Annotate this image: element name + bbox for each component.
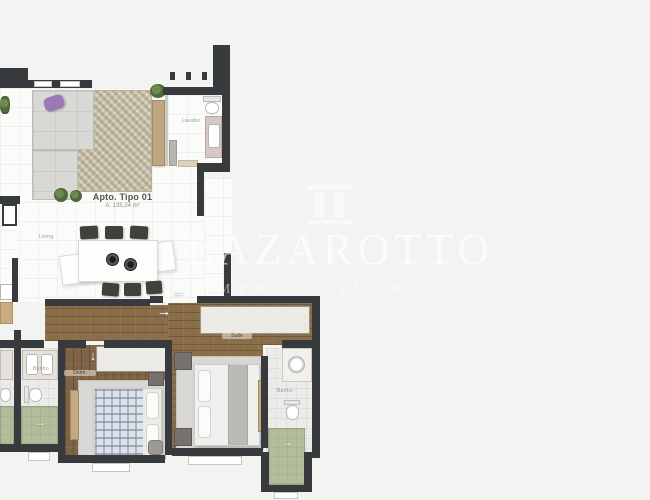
hallway-arrow-icon: → (146, 303, 182, 320)
wall-segment (261, 485, 312, 492)
bedroom-window (92, 463, 130, 472)
bathroom-window (28, 452, 50, 461)
neighbor-shower-floor (0, 406, 14, 446)
column-arch-icon (304, 182, 356, 228)
toilet-icon (29, 388, 42, 402)
lavabo-sink (208, 124, 220, 148)
vent-tick (186, 72, 191, 80)
wall-segment (312, 296, 320, 458)
bed-pillow (198, 406, 211, 438)
toilet-icon (286, 405, 299, 420)
suite-shower-arrow-icon: → (274, 435, 300, 449)
wall-segment (12, 258, 18, 302)
nightstand (174, 428, 192, 446)
room-label-bath-suite: Banho (270, 388, 300, 394)
room-label-living: Living (28, 234, 64, 240)
room-label-bath: Banho (28, 366, 54, 372)
wall-segment (165, 340, 172, 455)
bed-blanket (228, 365, 248, 445)
floor-plan-image: Apto. Tipo 01 A: 135,24 m² Living Lavabo… (0, 0, 650, 500)
wall-segment (197, 163, 230, 172)
wall-segment (282, 340, 312, 348)
entry-arrow-icon: ← (162, 284, 196, 301)
armchair (148, 440, 163, 455)
wall-segment (104, 340, 165, 348)
bathroom-vanity (0, 350, 13, 380)
cooktop-burner-icon (106, 253, 119, 266)
watermark-brand: LAZAROTTO (186, 224, 494, 275)
vent-tick (170, 72, 175, 80)
bed-bench (70, 390, 79, 440)
lavabo-cabinet (169, 140, 177, 166)
toilet-icon (0, 388, 11, 402)
wall-segment (20, 444, 58, 452)
wall-light (165, 95, 168, 166)
bedroom-wardrobe (96, 346, 168, 372)
window (34, 81, 52, 87)
room-label-bedroom: Dorm. (64, 370, 96, 376)
sideboard (152, 100, 165, 166)
laundry-counter (0, 302, 13, 324)
dining-chair (105, 226, 123, 239)
side-door (2, 204, 17, 226)
wall-segment (0, 196, 20, 204)
apartment-label: Apto. Tipo 01 A: 135,24 m² (70, 192, 175, 209)
bed-plaid-blanket (95, 389, 143, 455)
wall-segment (14, 330, 21, 452)
suite-sink (288, 356, 305, 373)
cooktop-burner-icon (124, 258, 137, 271)
window (60, 81, 80, 87)
apartment-area: A: 135,24 m² (70, 203, 175, 209)
lavabo-mat (178, 160, 198, 167)
shower-arrow-icon: → (26, 415, 54, 429)
bedroom-door-arrow-icon: ↓ (84, 348, 102, 363)
suite-window (188, 456, 242, 465)
dining-chair (80, 226, 99, 240)
wall-segment (0, 340, 44, 348)
vent-tick (202, 72, 207, 80)
bed-pillow (146, 392, 159, 419)
nightstand (148, 372, 164, 386)
balcony-plant-icon (0, 96, 10, 114)
wall-segment (58, 455, 165, 463)
wall-segment (197, 172, 204, 216)
toilet-icon (205, 102, 219, 114)
wall-segment (172, 448, 263, 456)
wall-segment (58, 340, 65, 462)
plant-icon (54, 188, 68, 202)
bed-pillow (198, 370, 211, 402)
nightstand (174, 352, 192, 370)
dining-chair (102, 282, 120, 296)
room-label-suite: Suíte (222, 333, 252, 339)
dining-chair (130, 226, 149, 240)
wall-segment (163, 87, 230, 95)
shower-window (274, 492, 298, 499)
apartment-title: Apto. Tipo 01 (70, 192, 175, 202)
room-label-lavabo: Lavabo (176, 118, 206, 124)
watermark-subtitle: EMPREENDIMENTOS (201, 282, 458, 298)
dining-chair (124, 283, 141, 296)
wall-segment (261, 356, 268, 448)
dining-chair (146, 280, 163, 294)
wall-segment (0, 444, 14, 452)
wall-segment (45, 299, 150, 306)
suite-wardrobe (200, 306, 310, 334)
wall-segment (0, 68, 28, 88)
wall-segment (222, 95, 230, 172)
